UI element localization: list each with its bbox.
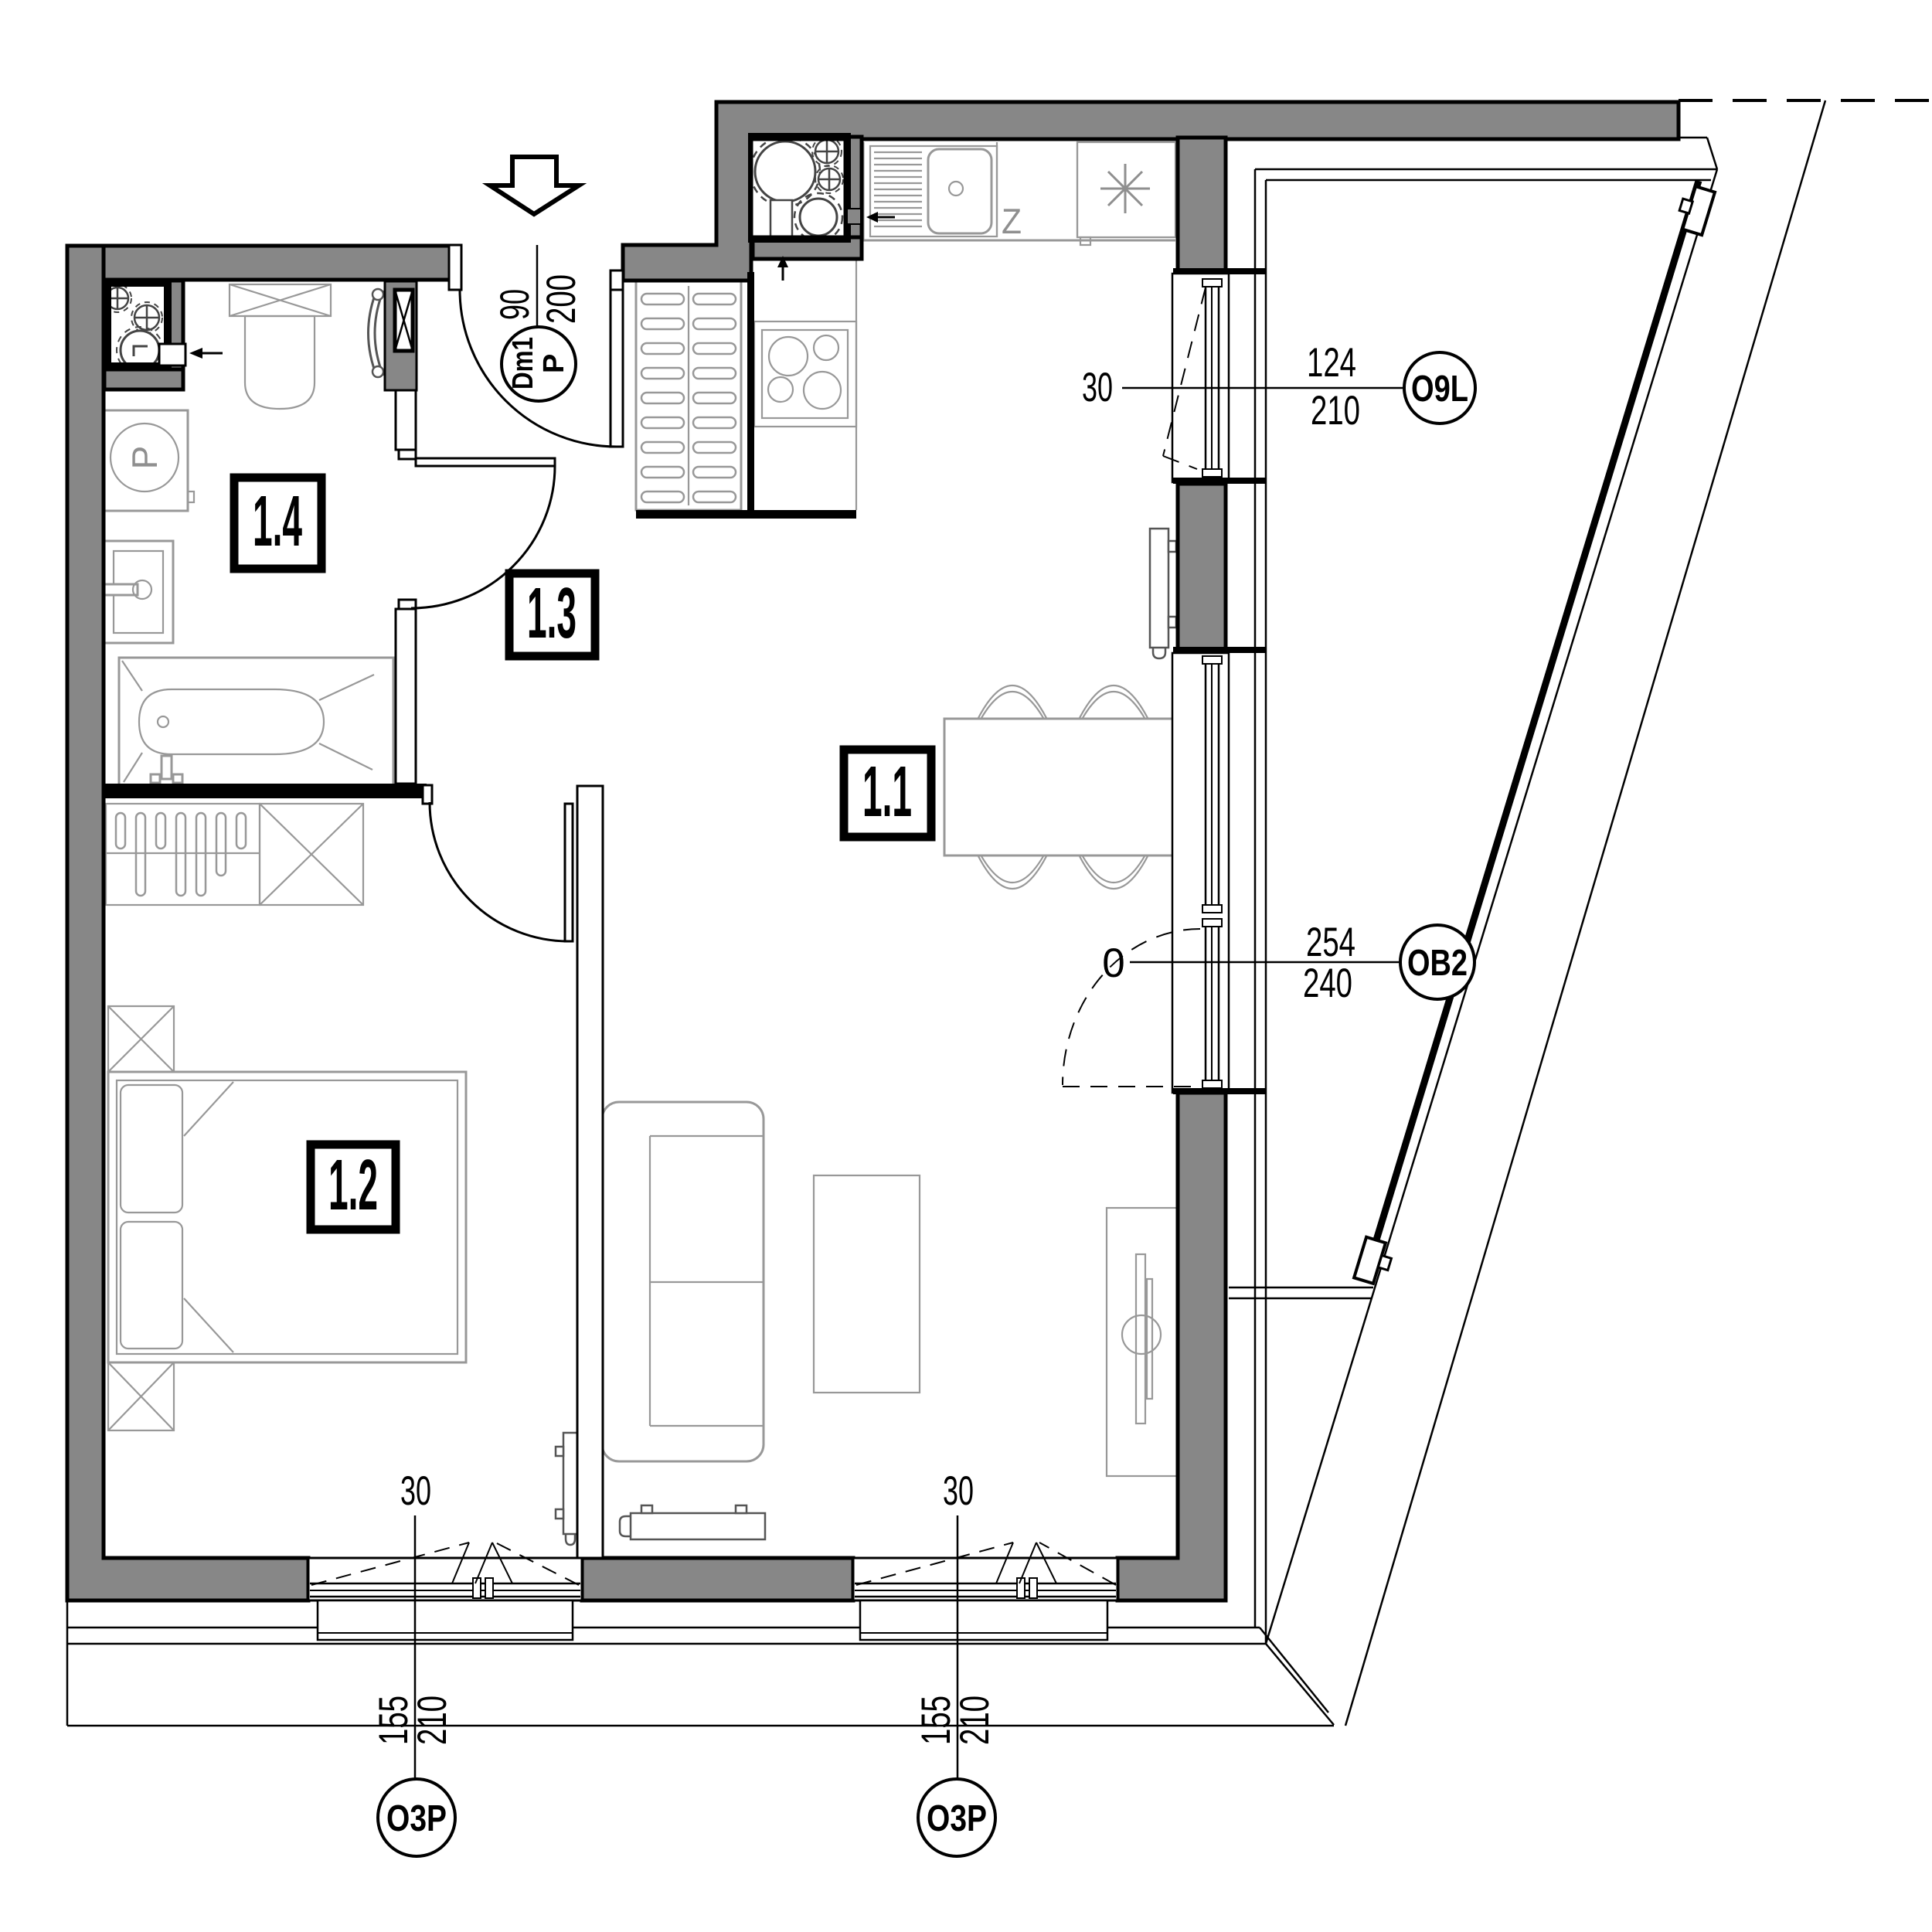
svg-text:1.4: 1.4: [253, 481, 302, 561]
svg-text:O3P: O3P: [386, 1798, 447, 1839]
svg-text:0: 0: [1102, 940, 1124, 986]
svg-text:90: 90: [492, 289, 538, 320]
svg-text:1.2: 1.2: [328, 1145, 378, 1225]
svg-text:P: P: [538, 354, 570, 373]
svg-text:30: 30: [1082, 365, 1113, 410]
svg-text:OB2: OB2: [1407, 943, 1468, 984]
svg-text:210: 210: [410, 1696, 455, 1745]
svg-text:30: 30: [400, 1468, 431, 1514]
svg-text:30: 30: [943, 1468, 974, 1514]
svg-text:1.3: 1.3: [527, 573, 577, 653]
svg-text:Z: Z: [1002, 201, 1022, 241]
svg-text:210: 210: [952, 1696, 998, 1745]
svg-text:240: 240: [1303, 961, 1352, 1006]
svg-text:P: P: [124, 446, 165, 470]
svg-text:Dm1: Dm1: [507, 337, 539, 389]
svg-text:1.1: 1.1: [862, 751, 912, 832]
svg-text:210: 210: [1311, 388, 1360, 434]
svg-text:124: 124: [1307, 340, 1356, 386]
svg-text:254: 254: [1306, 920, 1355, 965]
svg-text:O3P: O3P: [927, 1798, 987, 1839]
svg-text:O9L: O9L: [1411, 369, 1468, 410]
svg-text:200: 200: [539, 274, 584, 324]
